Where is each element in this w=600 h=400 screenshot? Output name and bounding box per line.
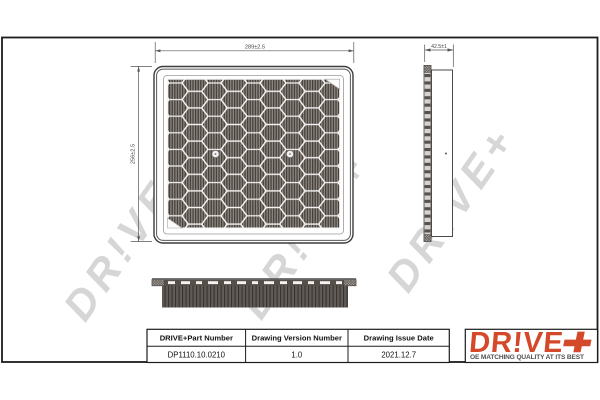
svg-text:DRIVE+Part Number: DRIVE+Part Number [160,334,233,343]
svg-text:DP1110.10.0210: DP1110.10.0210 [168,350,226,359]
svg-text:289±2.5: 289±2.5 [245,45,265,51]
svg-text:42.5±1: 42.5±1 [431,44,447,50]
svg-text:Drawing Version Number: Drawing Version Number [252,334,342,343]
svg-text:2021.12.7: 2021.12.7 [381,350,416,359]
svg-text:256±2.5: 256±2.5 [131,144,137,164]
svg-text:1.0: 1.0 [291,350,303,359]
svg-text:Drawing Issue Date: Drawing Issue Date [364,334,434,343]
svg-text:OE MATCHING QUALITY AT ITS BES: OE MATCHING QUALITY AT ITS BEST [470,354,584,361]
